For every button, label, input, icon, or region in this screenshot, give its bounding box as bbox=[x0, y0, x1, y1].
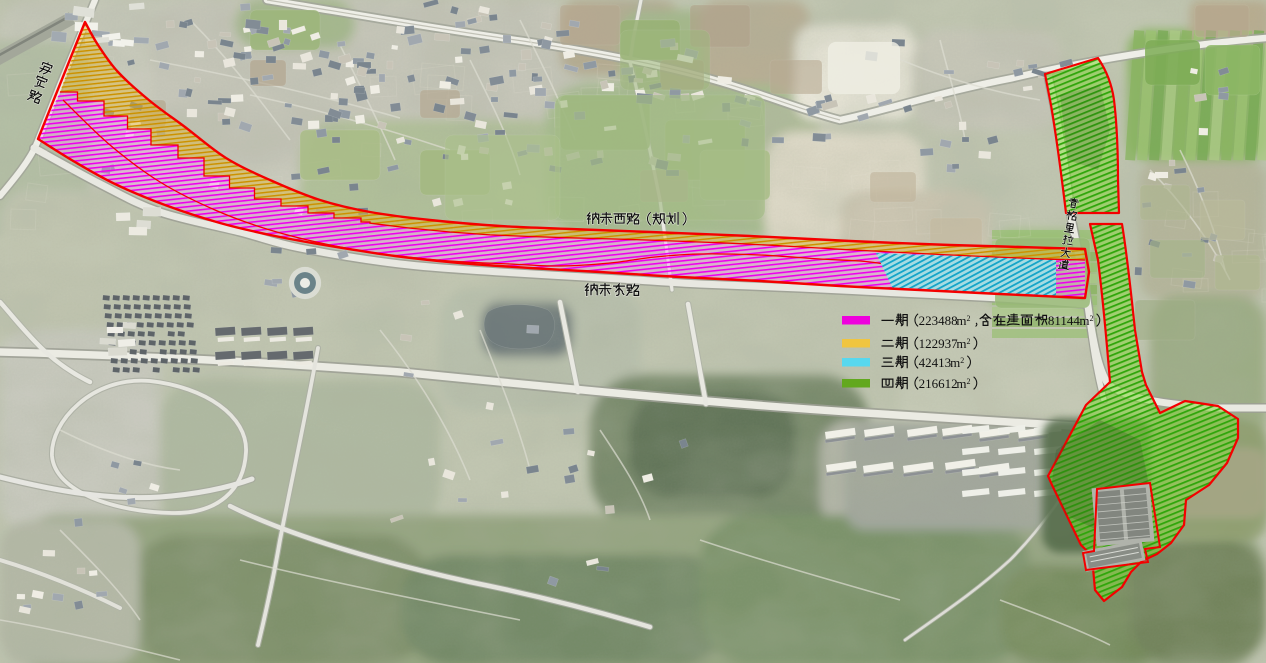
svg-text:216612: 216612 bbox=[919, 376, 958, 391]
svg-text:81144: 81144 bbox=[1048, 313, 1081, 328]
svg-text:122937: 122937 bbox=[919, 336, 959, 351]
svg-text:223488: 223488 bbox=[919, 313, 958, 328]
svg-text:42413: 42413 bbox=[919, 355, 952, 370]
